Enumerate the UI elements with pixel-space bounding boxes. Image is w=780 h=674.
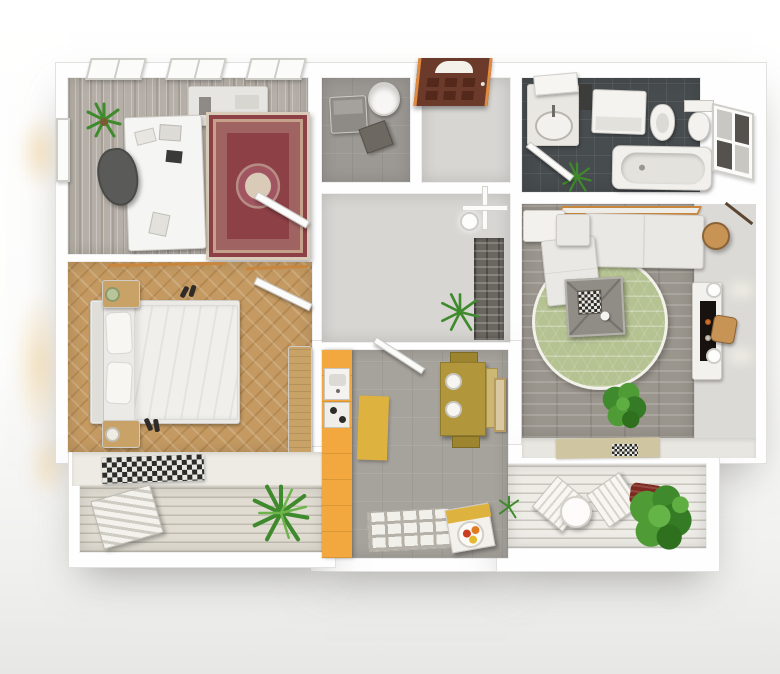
door-arch-window bbox=[435, 61, 474, 73]
window-mullion bbox=[274, 60, 280, 78]
tile-mat bbox=[367, 508, 451, 552]
sofa-main bbox=[584, 213, 705, 269]
papers bbox=[159, 124, 182, 141]
office-window bbox=[165, 58, 226, 80]
bidet-bowl bbox=[656, 113, 669, 133]
plate bbox=[445, 373, 462, 390]
door-panel bbox=[462, 78, 475, 87]
desk-lamp bbox=[148, 212, 170, 237]
floor-plan-render bbox=[0, 0, 780, 674]
chessboard bbox=[577, 290, 602, 315]
kitchen-sink bbox=[324, 368, 350, 400]
dresser-grill bbox=[235, 95, 259, 109]
office-side-window bbox=[56, 118, 70, 182]
sofa-corner bbox=[556, 214, 590, 246]
washer-top bbox=[333, 99, 363, 114]
dining-chair bbox=[452, 436, 480, 448]
palm-plant-icon bbox=[250, 482, 312, 544]
wall-picture bbox=[494, 378, 506, 432]
pillow bbox=[105, 361, 133, 404]
ceiling-light-bulb bbox=[460, 212, 479, 231]
table-lamp bbox=[105, 287, 120, 302]
office-window bbox=[85, 58, 146, 80]
toilet-tank bbox=[684, 100, 714, 112]
washer-drawers bbox=[595, 116, 641, 132]
cooktop bbox=[324, 402, 350, 428]
window-pane bbox=[717, 140, 732, 170]
balcony-table bbox=[560, 496, 592, 528]
bidet bbox=[650, 104, 675, 141]
window-pane bbox=[717, 109, 732, 141]
door-panel bbox=[444, 78, 457, 87]
flame bbox=[705, 319, 711, 325]
laundry-basket bbox=[368, 82, 400, 116]
front-door bbox=[413, 58, 492, 106]
pillow bbox=[105, 311, 133, 354]
wall-sconce bbox=[706, 282, 722, 298]
bath-shelf bbox=[580, 84, 592, 110]
bathroom-washer bbox=[591, 89, 647, 135]
faucet-dot bbox=[336, 389, 340, 393]
sconce-glow bbox=[724, 346, 758, 366]
notebook bbox=[166, 150, 183, 164]
sconce-glow bbox=[724, 280, 758, 300]
door-panel bbox=[461, 91, 474, 100]
plant-icon bbox=[84, 100, 124, 140]
door-panel bbox=[425, 91, 438, 100]
sink-faucet bbox=[552, 105, 555, 117]
toilet bbox=[684, 100, 714, 143]
plant-icon bbox=[438, 290, 482, 334]
fruit-bowl bbox=[455, 519, 486, 550]
nightstand bbox=[102, 420, 140, 448]
door-knob bbox=[481, 82, 485, 86]
bathtub-drain bbox=[639, 165, 645, 171]
oriental-rug bbox=[206, 112, 310, 260]
duvet bbox=[134, 305, 238, 420]
window-mullion bbox=[114, 60, 120, 78]
burner bbox=[330, 407, 337, 414]
bathtub-basin bbox=[621, 152, 706, 184]
window-pane bbox=[735, 113, 749, 144]
ceiling-light-bar bbox=[462, 205, 508, 211]
checkered-rug bbox=[102, 454, 205, 484]
door-panel bbox=[426, 78, 439, 87]
kitchen-cabinet-run bbox=[322, 350, 352, 558]
small-plant-icon bbox=[496, 494, 522, 520]
bathroom-mirror bbox=[533, 72, 579, 96]
bathtub bbox=[612, 145, 713, 191]
dining-table bbox=[440, 362, 486, 436]
bush-plant-icon bbox=[594, 376, 652, 434]
serving-cart bbox=[445, 503, 496, 554]
burner bbox=[339, 416, 346, 423]
bed-headboard bbox=[92, 302, 104, 422]
table-lamp bbox=[105, 427, 120, 442]
toilet-bowl bbox=[688, 112, 710, 141]
kitchen-mat bbox=[357, 395, 389, 460]
wall-sconce bbox=[706, 348, 722, 364]
fruit bbox=[468, 535, 477, 544]
doormat-small bbox=[612, 444, 638, 456]
window-pane bbox=[735, 144, 749, 173]
plate bbox=[445, 401, 462, 418]
decor-ball bbox=[600, 311, 609, 320]
window-mullion bbox=[194, 60, 200, 78]
living-area-rug bbox=[556, 437, 660, 459]
door-panel bbox=[443, 91, 456, 100]
arc-lamp-shade bbox=[702, 222, 730, 250]
fruit bbox=[471, 525, 480, 534]
nightstand bbox=[102, 280, 140, 308]
papers bbox=[134, 127, 157, 145]
side-table bbox=[710, 314, 738, 345]
office-window bbox=[245, 58, 306, 80]
coffee-table bbox=[565, 277, 626, 338]
bathroom-window bbox=[712, 103, 754, 181]
bush-plant-icon bbox=[616, 474, 700, 558]
sink-bowl bbox=[329, 374, 346, 386]
